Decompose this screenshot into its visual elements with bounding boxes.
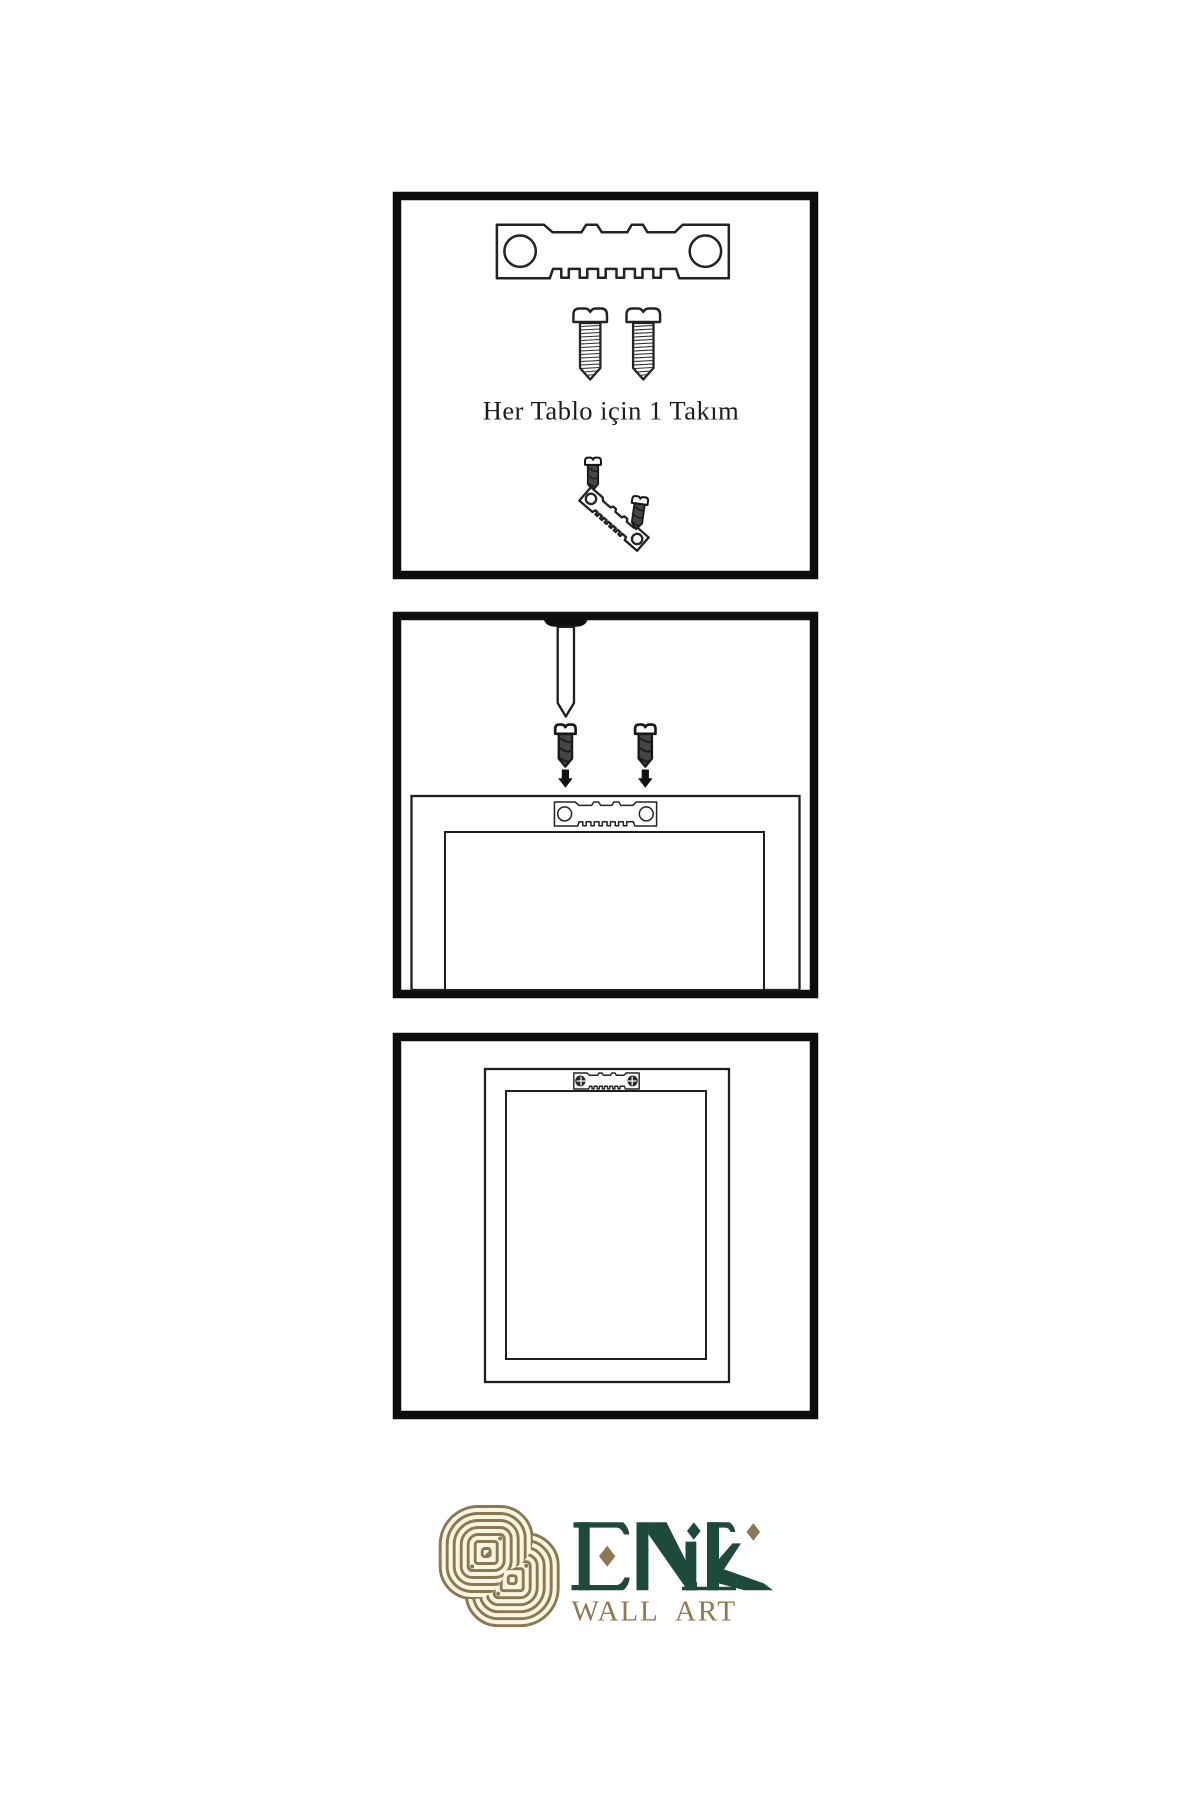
svg-text:Her Tablo için 1 Takım: Her Tablo için 1 Takım <box>483 396 740 426</box>
svg-text:WALL ART: WALL ART <box>572 1596 738 1628</box>
